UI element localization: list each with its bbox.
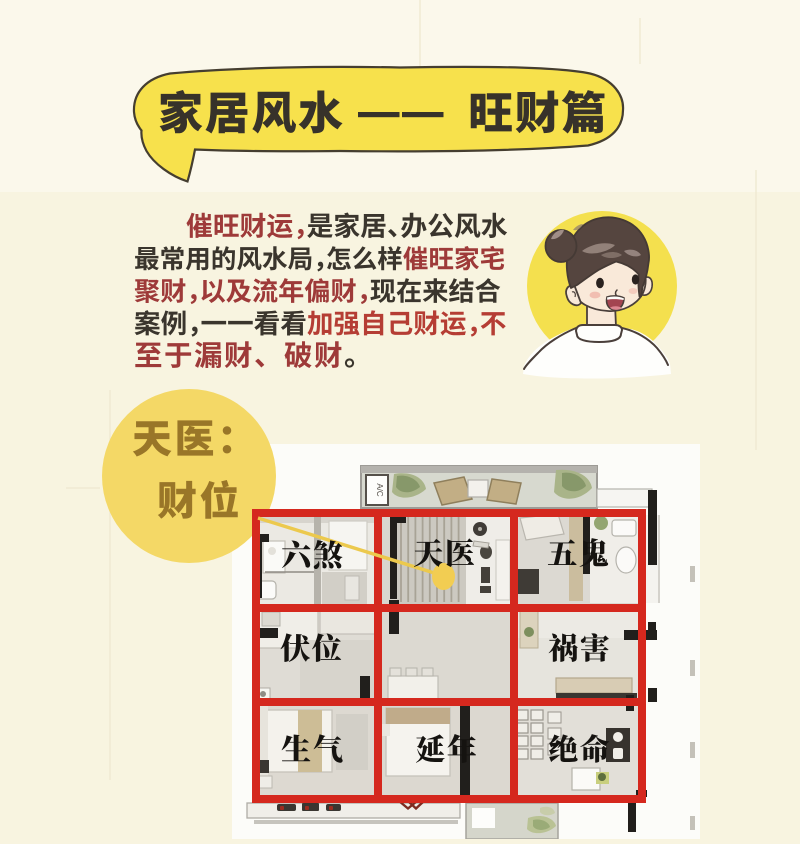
svg-text:A/C: A/C bbox=[375, 483, 384, 497]
